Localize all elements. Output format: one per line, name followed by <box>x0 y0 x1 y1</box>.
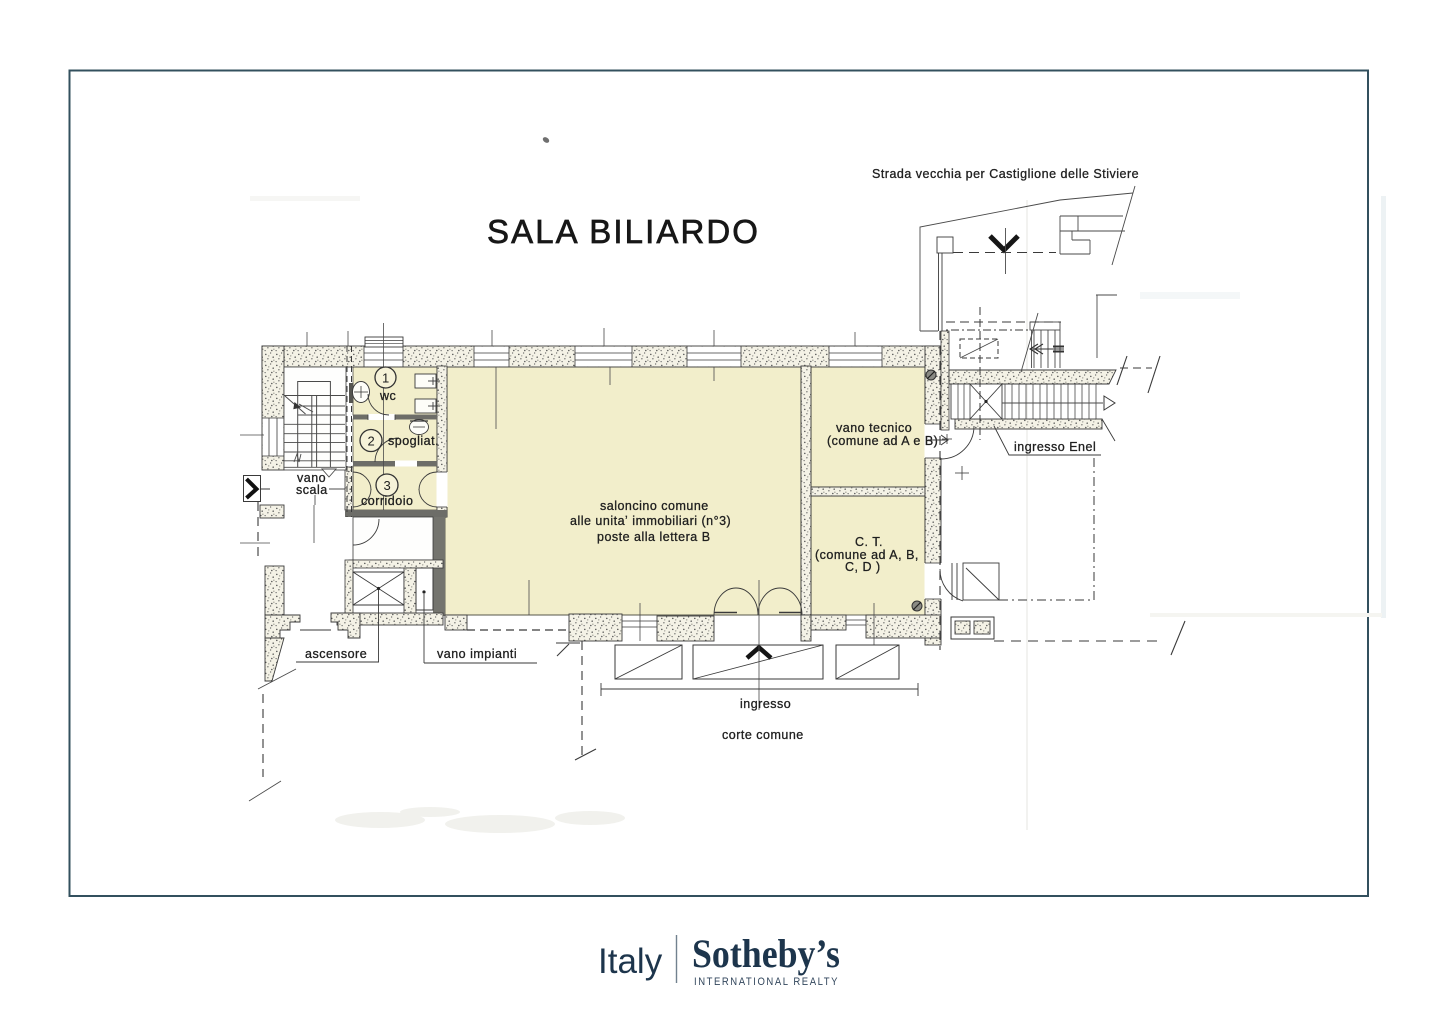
svg-text:scala: scala <box>296 483 328 497</box>
svg-text:ascensore: ascensore <box>305 647 367 661</box>
svg-text:ingresso: ingresso <box>740 697 791 711</box>
svg-text:Strada vecchia per Castiglione: Strada vecchia per Castiglione delle Sti… <box>872 167 1139 181</box>
svg-text:corridoio: corridoio <box>361 494 413 508</box>
svg-text:1: 1 <box>382 371 389 386</box>
svg-text:C. T.: C. T. <box>855 535 883 549</box>
svg-text:INTERNATIONAL REALTY: INTERNATIONAL REALTY <box>694 976 839 988</box>
svg-text:C, D ): C, D ) <box>845 560 881 574</box>
svg-text:spogliat.: spogliat. <box>388 434 439 448</box>
svg-text:corte comune: corte comune <box>722 728 804 742</box>
svg-text:wc: wc <box>379 389 396 403</box>
svg-text:SALA BILIARDO: SALA BILIARDO <box>487 213 760 250</box>
svg-text:vano tecnico: vano tecnico <box>836 421 912 435</box>
svg-text:3: 3 <box>384 478 391 493</box>
svg-text:2: 2 <box>368 434 375 449</box>
svg-text:ingresso Enel: ingresso Enel <box>1014 440 1096 454</box>
svg-text:poste alla lettera B: poste alla lettera B <box>597 530 711 544</box>
svg-text:vano impianti: vano impianti <box>437 647 517 661</box>
svg-text:Sotheby’s: Sotheby’s <box>692 931 840 976</box>
svg-text:Italy: Italy <box>598 942 663 981</box>
svg-text:(comune ad A e B): (comune ad A e B) <box>827 434 938 448</box>
svg-text:saloncino comune: saloncino comune <box>600 499 709 513</box>
svg-text:alle unitaʼ immobiliari (n°3): alle unitaʼ immobiliari (n°3) <box>570 514 731 528</box>
